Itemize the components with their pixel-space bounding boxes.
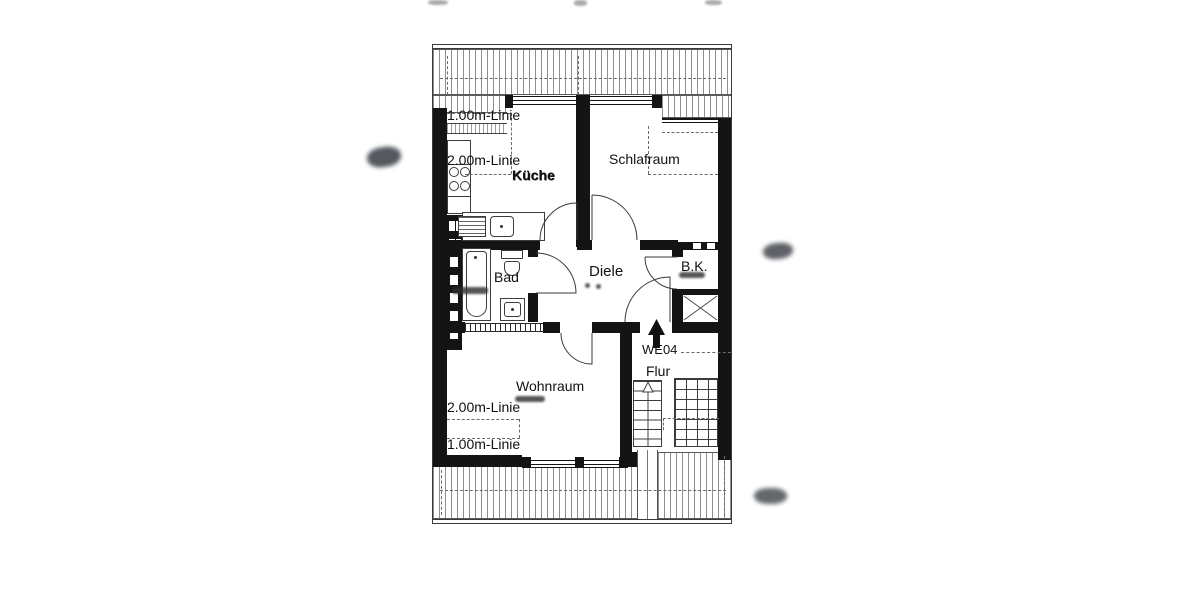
label-1m-line-bottom: 1.00m-Linie (447, 437, 520, 452)
toilet-tank-icon (501, 250, 523, 259)
wall-outer-right (718, 118, 731, 460)
cropped-top-mark (428, 0, 448, 5)
chimney-flue (450, 257, 458, 267)
stair-flight-lower (674, 378, 718, 447)
chimney-flue (450, 275, 458, 285)
stove-burner-icon (449, 167, 459, 177)
label-bedroom: Schlafraum (609, 152, 680, 167)
wall-mid-horizontal (577, 240, 592, 250)
cropped-top-mark (705, 0, 722, 5)
smudge-storage-area (679, 272, 705, 278)
dashed-2m-line-bedroom (648, 174, 718, 175)
stove-burner-icon (449, 181, 459, 191)
chimney-flue (450, 293, 458, 303)
door-arc-bedroom (592, 195, 637, 240)
dashed-roof-line-top (440, 78, 726, 79)
smudge-living-area (515, 396, 545, 402)
dashed-unit-line (681, 352, 731, 353)
dashed-stair-headroom-v (663, 418, 664, 430)
wall-storage-left (672, 289, 683, 322)
roof-hatch-top (433, 49, 731, 95)
dashed-hatch-v (447, 56, 448, 95)
label-2m-line-bottom: 2.00m-Linie (447, 400, 520, 415)
wall-kitchen-bedroom (576, 108, 590, 247)
window-mullion (575, 457, 584, 468)
chimney-flue (450, 311, 458, 321)
wall-top-pier (576, 95, 590, 108)
stairwell-strip (637, 450, 658, 519)
label-1m-line-top: 1.00m-Linie (447, 108, 520, 123)
wall-bath-right (528, 293, 538, 322)
wall-living-top (447, 322, 465, 333)
chimney-flue (449, 221, 455, 231)
dashed-1m-line-bedroom (662, 132, 718, 133)
dashed-roof-line-bottom (440, 490, 726, 491)
smudge-redaction (762, 241, 794, 260)
door-arc-bath (536, 253, 576, 293)
floor-plan-page: { "plan": { "labels": { "line_1m_top": "… (0, 0, 1200, 600)
dashed-stair-headroom (663, 418, 719, 419)
label-unit: WE04 (642, 343, 677, 357)
basin-drain-dot (511, 308, 514, 311)
door-arc-entrance (625, 277, 670, 322)
dashed-hatch-v (724, 456, 725, 516)
stove-burner-icon (460, 167, 470, 177)
entrance-arrow-icon (648, 319, 665, 335)
roof-edge-right (731, 44, 732, 524)
wall-mid-horizontal (640, 240, 678, 250)
radiator-band (465, 323, 543, 332)
stair-flight-up (633, 380, 662, 447)
label-2m-line-top: 2.00m-Linie (447, 153, 520, 168)
wall-top-segment (652, 95, 662, 108)
wall-living-top (592, 322, 640, 333)
roof-edge-bottom-inner (433, 519, 731, 520)
shaft-cross-icon (684, 296, 717, 320)
label-living: Wohnraum (516, 379, 584, 394)
sink-drain-dot (500, 225, 503, 228)
bathtub-inner (466, 251, 487, 317)
wall-living-corridor (620, 333, 632, 462)
door-arc-living (561, 333, 592, 364)
wall-storage-left (672, 250, 683, 257)
dashed-2m-line-living (447, 419, 519, 420)
door-arc-kitchen (540, 203, 577, 240)
window-bedroom (590, 96, 652, 105)
stove-burner-icon (460, 181, 470, 191)
label-bath: Bad (494, 270, 519, 285)
label-hall: Diele (589, 264, 623, 281)
window-living-2 (584, 460, 619, 468)
dashed-hatch-v (441, 470, 442, 515)
smudge-redaction (366, 145, 402, 170)
window-mullion (619, 457, 628, 468)
shaft-box-top (683, 289, 718, 295)
wall-step-top-right (662, 118, 718, 123)
wall-living-top (672, 322, 731, 333)
window-living-1 (531, 460, 575, 468)
vent-box (693, 243, 701, 249)
dashed-2m-line-kitchen (465, 174, 511, 175)
door-arc-storage (645, 257, 677, 289)
wall-bottom-segment (433, 455, 522, 467)
smudge-hall-dot (585, 283, 590, 288)
vent-box (707, 243, 715, 249)
wall-bath-right (528, 250, 538, 257)
counter-divider (447, 196, 471, 197)
label-corridor: Flur (646, 364, 670, 379)
roof-edge-top-outer (433, 44, 731, 45)
roof-hatch-top-right (662, 95, 731, 118)
wall-outer-left (433, 108, 447, 462)
cropped-top-mark (574, 0, 587, 6)
roof-edge-bottom-outer (433, 523, 731, 524)
roof-hatch-bottom-left (433, 466, 645, 519)
window-kitchen (513, 96, 576, 105)
smudge-hall-dot (596, 284, 601, 289)
window-mullion (522, 457, 531, 468)
wall-living-top (543, 322, 560, 333)
tub-drain-dot (474, 256, 477, 259)
smudge-bath-area (452, 287, 488, 294)
label-kitchen: Küche (512, 168, 555, 183)
wall-mid-horizontal (447, 240, 540, 250)
smudge-redaction (754, 488, 787, 504)
dashed-hatch-v (578, 56, 579, 95)
drainer-icon (458, 216, 486, 237)
knee-wall-strip (447, 123, 507, 134)
